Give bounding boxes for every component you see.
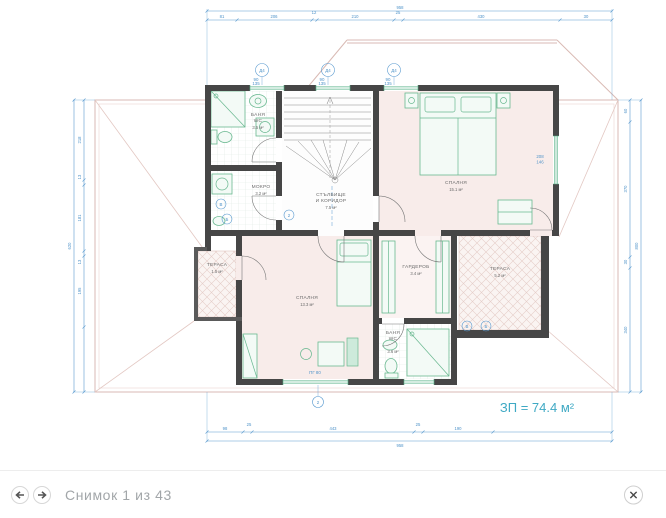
label-mokro-name: МОКРО [252, 184, 271, 190]
window-marker-label-3: Д4 [391, 68, 397, 73]
label-terrace-left-name: ТЕРАСА [207, 262, 228, 268]
window-size-h-2: 135 [318, 81, 326, 86]
window-marker-label-2: Д4 [325, 68, 331, 73]
previous-photo-button[interactable] [11, 486, 29, 504]
dim-top-2: 12 [312, 10, 317, 15]
close-icon [629, 490, 638, 499]
dim-right-0: 60 [623, 108, 628, 113]
section-marker-c1: В [220, 202, 223, 207]
label-bath-top-sub: WC [254, 118, 263, 124]
label-terrace-left-area: 1.5 м² [211, 269, 223, 274]
arrow-left-icon [15, 490, 25, 500]
dim-bottom-3: 25 [416, 422, 421, 427]
label-bedroom-second-name: СПАЛНЯ [296, 295, 318, 301]
section-marker-c4: В [466, 324, 469, 329]
dim-top-6: 30 [584, 14, 589, 19]
label-terrace-right-name: ТЕРАСА [490, 266, 511, 272]
label-stairs-area: 7.5 м² [325, 205, 337, 210]
dim-left-total: 620 [67, 242, 72, 250]
right-window-size-h: 146 [536, 160, 544, 165]
dim-left-1: 13 [77, 174, 82, 179]
arrow-right-icon [37, 490, 47, 500]
label-wardrobe-name: ГАРДЕРОБ [402, 264, 429, 270]
dim-bottom-0: 98 [223, 426, 228, 431]
label-bedroom-second-area: 13.3 м² [300, 302, 314, 307]
dim-left-2: 181 [77, 214, 82, 222]
close-viewer-button[interactable] [624, 485, 643, 504]
label-bath-bottom-area: 3.6 м² [387, 349, 399, 354]
label-bath-bottom-sub: WC [389, 336, 398, 342]
label-bath-bottom-name: БАНЯ [386, 330, 401, 336]
label-stairs-sub: И КОРИДОР [316, 198, 347, 204]
label-terrace-right-area: 5.2 м² [494, 273, 506, 278]
window-size-h-1: 135 [252, 81, 260, 86]
photo-counter: Снимок 1 из 43 [65, 487, 172, 503]
window-marker-label-1: Д4 [259, 68, 265, 73]
total-area-label: ЗП = 74.4 м² [500, 400, 575, 415]
label-mokro-area: 3.2 м² [255, 191, 267, 196]
dim-bottom-1: 25 [247, 422, 252, 427]
dim-top-4: 25 [396, 10, 401, 15]
section-marker-c2: Б [226, 217, 229, 222]
dim-left-3: 13 [77, 259, 82, 264]
dim-top-0: 81 [220, 14, 225, 19]
next-photo-button[interactable] [33, 486, 51, 504]
section-marker-c5: Б [485, 324, 488, 329]
floorplan-drawing: 958 81 206 12 210 25 430 30 98 25 443 25… [0, 0, 666, 470]
dim-right-2: 30 [623, 259, 628, 264]
dim-left-4: 195 [77, 287, 82, 295]
label-bedroom-main-name: СПАЛНЯ [445, 180, 467, 186]
label-wardrobe-area: 3.4 м² [410, 271, 422, 276]
dim-top-1: 206 [271, 14, 279, 19]
section-marker-c6: 2 [317, 400, 320, 405]
dim-left-0: 218 [77, 136, 82, 144]
floorplan-viewer: 958 81 206 12 210 25 430 30 98 25 443 25… [0, 0, 666, 470]
door-note: ПГ 80 [309, 370, 321, 375]
dim-right-1: 370 [623, 185, 628, 193]
label-bath-top-name: БАНЯ [251, 112, 266, 118]
viewer-toolbar: Снимок 1 из 43 [0, 470, 666, 518]
label-bath-top-area: 3.5 м² [252, 125, 264, 130]
terrace-left-door-gap [236, 256, 242, 280]
label-bedroom-main-area: 15.1 м² [449, 187, 463, 192]
window-size-h-3: 135 [384, 81, 392, 86]
dim-right-total: 800 [634, 242, 639, 250]
dim-right-3: 340 [623, 326, 628, 334]
dim-top-5: 430 [478, 14, 486, 19]
dim-bottom-4: 190 [455, 426, 463, 431]
label-stairs-name: СТЪЛБИЩЕ [316, 192, 346, 198]
dim-bottom-total: 958 [397, 443, 405, 448]
dim-bottom-2: 443 [330, 426, 338, 431]
dim-top-3: 210 [352, 14, 360, 19]
right-window-size-w: 208 [536, 154, 544, 159]
